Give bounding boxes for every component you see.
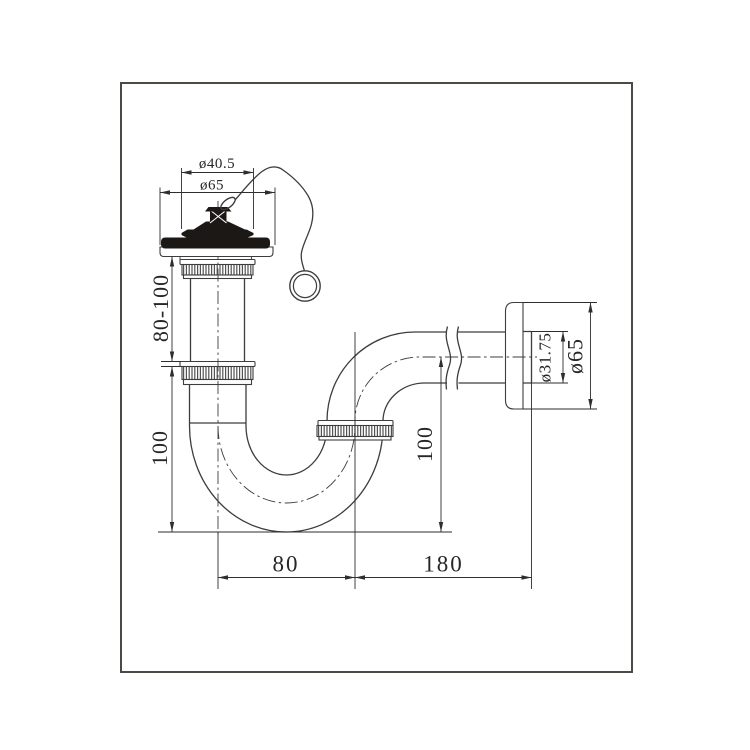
dim-label-outlet-pipe-diameter: ø31.75 [535, 333, 554, 383]
dim-label-top-flange-diameter: ø65 [200, 177, 224, 193]
wall-flange [506, 303, 524, 410]
dim-label-outlet-rise-height: 100 [412, 426, 437, 462]
dim-label-trap-width: 80 [273, 551, 300, 576]
slip-nut-top [180, 260, 255, 279]
drawing-sheet: ø40.5 ø65 80-100 100 100 80 180 [0, 0, 750, 750]
technical-drawing-canvas: ø40.5 ø65 80-100 100 100 80 180 [0, 0, 750, 750]
dim-label-wall-flange-diameter: ø65 [563, 338, 588, 374]
plug-seal-washer [161, 238, 270, 249]
slip-nut-middle [180, 362, 255, 385]
dim-label-trap-drop-height: 100 [147, 430, 172, 466]
plug-base-plate [182, 230, 254, 239]
dim-label-plug-diameter: ø40.5 [199, 156, 235, 172]
dim-label-outlet-run-length: 180 [423, 551, 464, 576]
dim-label-tailpiece-length: 80-100 [148, 274, 173, 342]
